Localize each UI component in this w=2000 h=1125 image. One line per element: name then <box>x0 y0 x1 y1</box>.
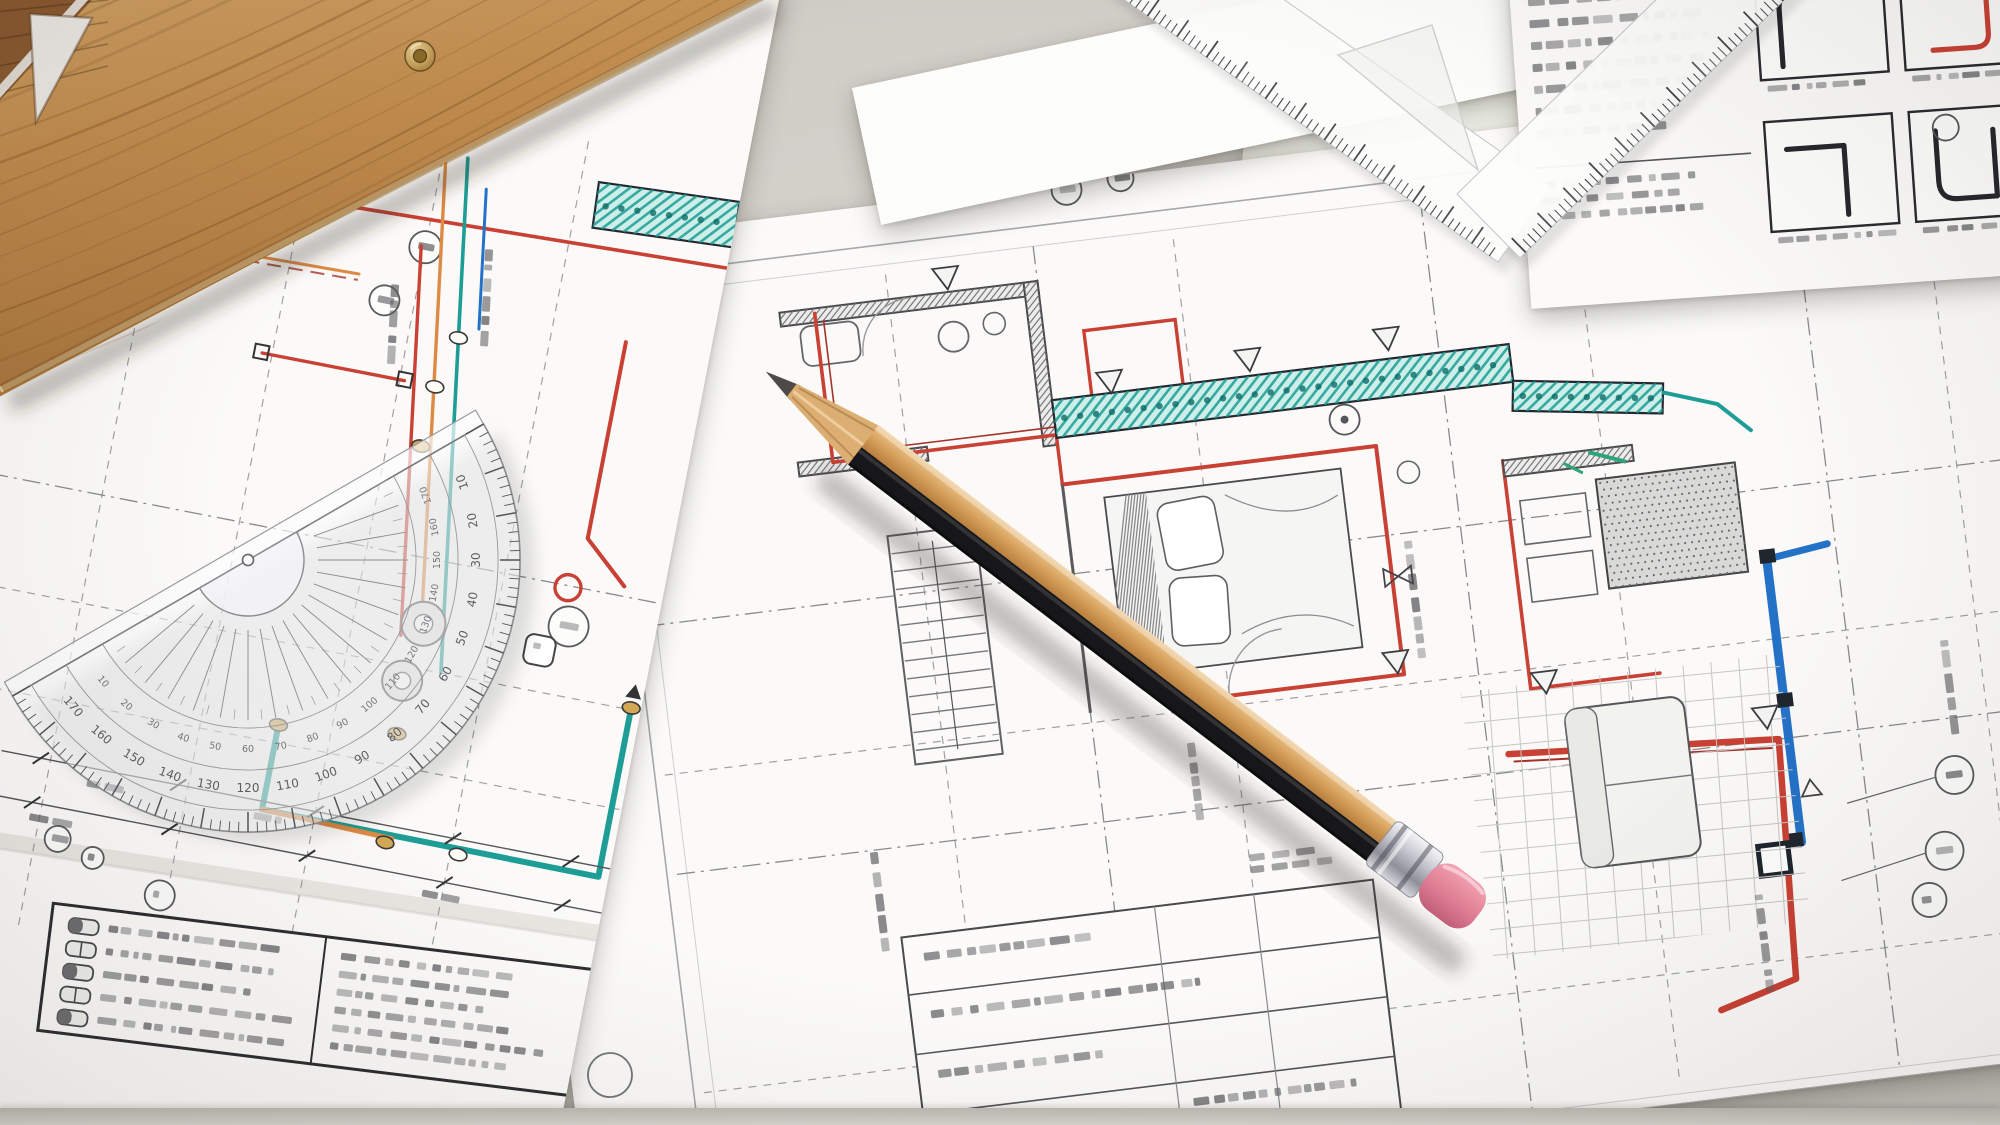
protractor-degree-label: 40 <box>464 591 480 608</box>
protractor-degree-label: 20 <box>464 512 480 529</box>
protractor-degree-label-inner: 150 <box>432 551 443 569</box>
pencil-shadow <box>811 465 1470 978</box>
protractor-degree-label-inner: 70 <box>274 740 288 753</box>
pencil-body-wood-facet <box>862 425 1399 844</box>
photo-scene: 1017020160301504014050130601207011080100… <box>0 0 2000 1125</box>
wooden-set-square <box>0 0 790 434</box>
protractor-degree-label-inner: 60 <box>242 744 254 755</box>
protractor-degree-label: 120 <box>237 781 260 795</box>
drafting-tools-layer: 1017020160301504014050130601207011080100… <box>0 0 2000 1125</box>
clear-triangle-ruler <box>1082 0 1821 274</box>
protractor-degree-label: 30 <box>469 552 483 567</box>
pencil <box>749 349 1494 937</box>
protractor: 1017020160301504014050130601207011080100… <box>4 406 634 945</box>
pencil-body-black-facet <box>848 447 1381 862</box>
protractor-degree-label-inner: 50 <box>208 740 222 753</box>
